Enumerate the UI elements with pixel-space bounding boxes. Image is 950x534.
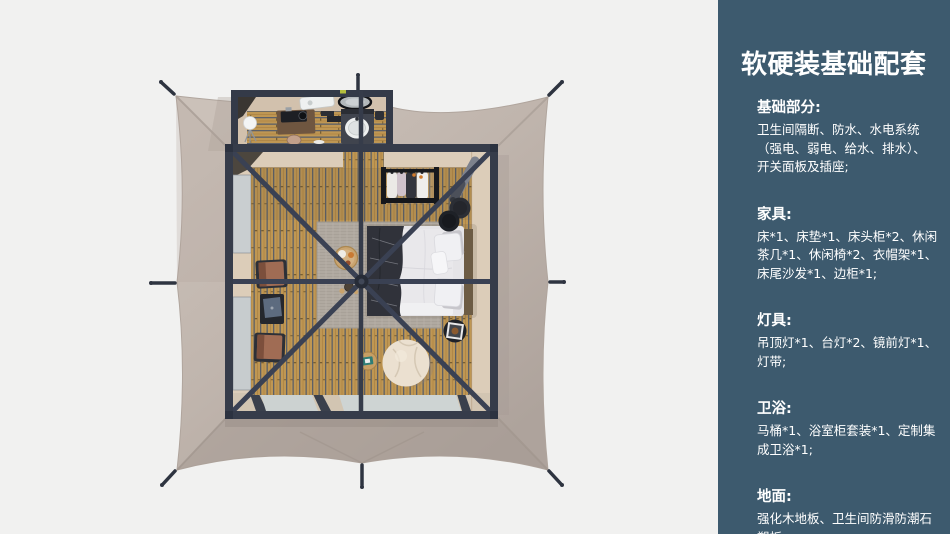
lounge-chair-bottom [253,332,285,362]
info-sidebar: 软硬装基础配套 基础部分: 卫生间隔断、防水、水电系统（强电、弱电、给水、排水）… [718,0,950,534]
bathroom-annex [231,90,393,152]
sidebar-title: 软硬装基础配套 [741,50,938,80]
passage-floor [343,152,384,168]
photo-side-table [444,320,467,343]
stake-top-left [159,80,174,94]
stake-bottom-right [549,471,564,487]
section-flooring: 地面: 强化木地板、卫生间防滑防潮石塑板; [757,489,938,534]
stake-bottom-left [160,471,175,487]
section-body: 马桶*1、浴室柜套装*1、定制集成卫浴*1; [757,422,938,459]
stake-right [550,280,566,284]
section-basics: 基础部分: 卫生间隔断、防水、水电系统（强电、弱电、给水、排水）、开关面板及插座… [757,100,938,177]
section-body: 卫生间隔断、防水、水电系统（强电、弱电、给水、排水）、开关面板及插座; [757,121,938,177]
section-heading: 家具: [757,207,938,224]
shower-tub-unit [341,109,374,144]
stake-left [149,281,175,285]
accent-tag [340,90,346,94]
section-bathroom: 卫浴: 马桶*1、浴室柜套装*1、定制集成卫浴*1; [757,401,938,459]
wall-mirror [339,95,371,109]
lounge-chair-top [255,259,287,289]
section-heading: 地面: [757,489,938,506]
stake-top-right [549,80,564,95]
clothes-rack [381,167,439,204]
vanity-desk [276,106,315,134]
stake-bottom-middle [360,465,364,489]
center-pole-tip [356,73,360,91]
section-heading: 基础部分: [757,100,938,117]
section-body: 床*1、床垫*1、床头柜*2、休闲茶几*1、休闲椅*2、衣帽架*1、床尾沙发*1… [757,228,938,284]
bath-mat [314,140,325,144]
tent-render [0,0,718,534]
toilet [375,111,384,120]
section-furniture: 家具: 床*1、床垫*1、床头柜*2、休闲茶几*1、休闲椅*2、衣帽架*1、床尾… [757,207,938,284]
section-heading: 灯具: [757,313,938,330]
side-shelf [260,294,284,324]
section-body: 吊顶灯*1、台灯*2、镜前灯*1、灯带; [757,334,938,371]
section-lighting: 灯具: 吊顶灯*1、台灯*2、镜前灯*1、灯带; [757,313,938,371]
vanity-stool [287,135,301,145]
section-body: 强化木地板、卫生间防滑防潮石塑板; [757,510,938,534]
page: 软硬装基础配套 基础部分: 卫生间隔断、防水、水电系统（强电、弱电、给水、排水）… [0,0,950,534]
section-heading: 卫浴: [757,401,938,418]
